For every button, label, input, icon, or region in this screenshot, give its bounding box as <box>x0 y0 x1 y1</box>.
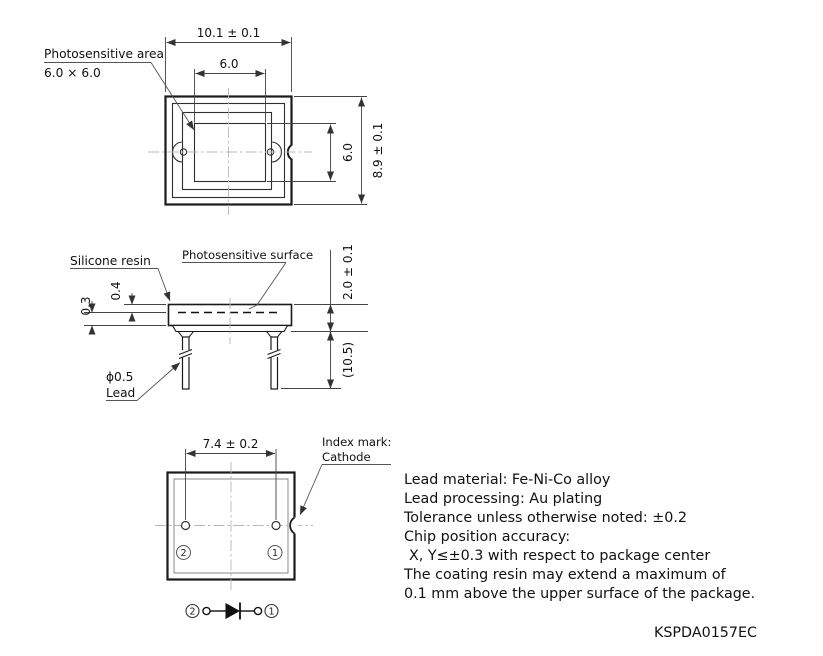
photosensitive-surface-label: Photosensitive surface <box>182 248 313 262</box>
note-lead-material: Lead material: Fe-Ni-Co alloy <box>404 472 611 488</box>
notes-block: Lead material: Fe-Ni-Co alloy Lead proce… <box>403 472 755 602</box>
photosensitive-area-label: Photosensitive area <box>44 47 164 61</box>
dim-inner-height-label: 6.0 <box>341 143 355 162</box>
index-notch-bottom <box>290 518 294 534</box>
dim-width-label: 10.1 ± 0.1 <box>197 26 261 40</box>
drawing-number: KSPDA0157EC <box>654 625 757 641</box>
dim-lead-length-label: (10.5) <box>341 342 355 378</box>
circuit-symbol: 2 1 <box>186 603 278 620</box>
dim-resin-label: 0.4 <box>109 281 123 300</box>
pin2-number: 2 <box>180 548 186 559</box>
anode-terminal <box>203 607 210 614</box>
technical-drawing: 10.1 ± 0.1 6.0 6.0 8.9 ± 0.1 Photosensit… <box>0 0 823 656</box>
cathode-terminal <box>254 607 261 614</box>
note-chip-accuracy: X, Y≤±0.3 with respect to package center <box>409 548 710 564</box>
dim-body-height-label: 2.0 ± 0.1 <box>341 244 355 300</box>
lead-1-position <box>272 522 280 530</box>
note-tolerance: Tolerance unless otherwise noted: ±0.2 <box>403 510 687 526</box>
note-coating-resin-2: 0.1 mm above the upper surface of the pa… <box>404 586 755 602</box>
lead-2-position <box>182 522 190 530</box>
index-mark-label: Index mark: <box>322 435 391 449</box>
right-lead <box>271 337 278 389</box>
lead-label: Lead <box>106 386 135 400</box>
side-view: 0.4 0.3 2.0 ± 0.1 (10.5) Silicone resin … <box>70 244 368 400</box>
circuit-pin1-number: 1 <box>268 606 274 617</box>
dimensional-drawing-page: 10.1 ± 0.1 6.0 6.0 8.9 ± 0.1 Photosensit… <box>0 0 823 656</box>
left-lead-shoulder <box>178 332 194 338</box>
dim-inner-width-label: 6.0 <box>219 57 238 71</box>
top-view: 10.1 ± 0.1 6.0 6.0 8.9 ± 0.1 Photosensit… <box>44 26 385 215</box>
circuit-pin2-number: 2 <box>189 606 195 617</box>
lead-leader <box>137 363 180 401</box>
photosensitive-area-outline <box>195 124 266 182</box>
dim-lead-pitch-label: 7.4 ± 0.2 <box>203 437 259 451</box>
index-leader <box>300 465 322 516</box>
pin1-number: 1 <box>272 548 278 559</box>
dim-height-label: 8.9 ± 0.1 <box>371 123 385 179</box>
right-lead-shoulder <box>267 332 283 338</box>
photosensitive-area-size: 6.0 × 6.0 <box>44 66 101 80</box>
diode-triangle <box>226 603 241 619</box>
surface-leader <box>249 263 286 310</box>
dim-step-label: 0.3 <box>79 296 93 315</box>
note-chip-position: Chip position accuracy: <box>404 529 570 545</box>
note-coating-resin-1: The coating resin may extend a maximum o… <box>403 567 727 583</box>
bottom-view: 2 1 7.4 ± 0.2 Index mark: Cathode <box>155 435 391 592</box>
note-lead-processing: Lead processing: Au plating <box>404 491 602 507</box>
silicone-resin-label: Silicone resin <box>70 254 151 268</box>
lead-diameter-label: ϕ0.5 <box>106 370 133 384</box>
cathode-label: Cathode <box>322 450 371 464</box>
left-lead <box>183 337 190 389</box>
resin-leader <box>158 269 170 302</box>
